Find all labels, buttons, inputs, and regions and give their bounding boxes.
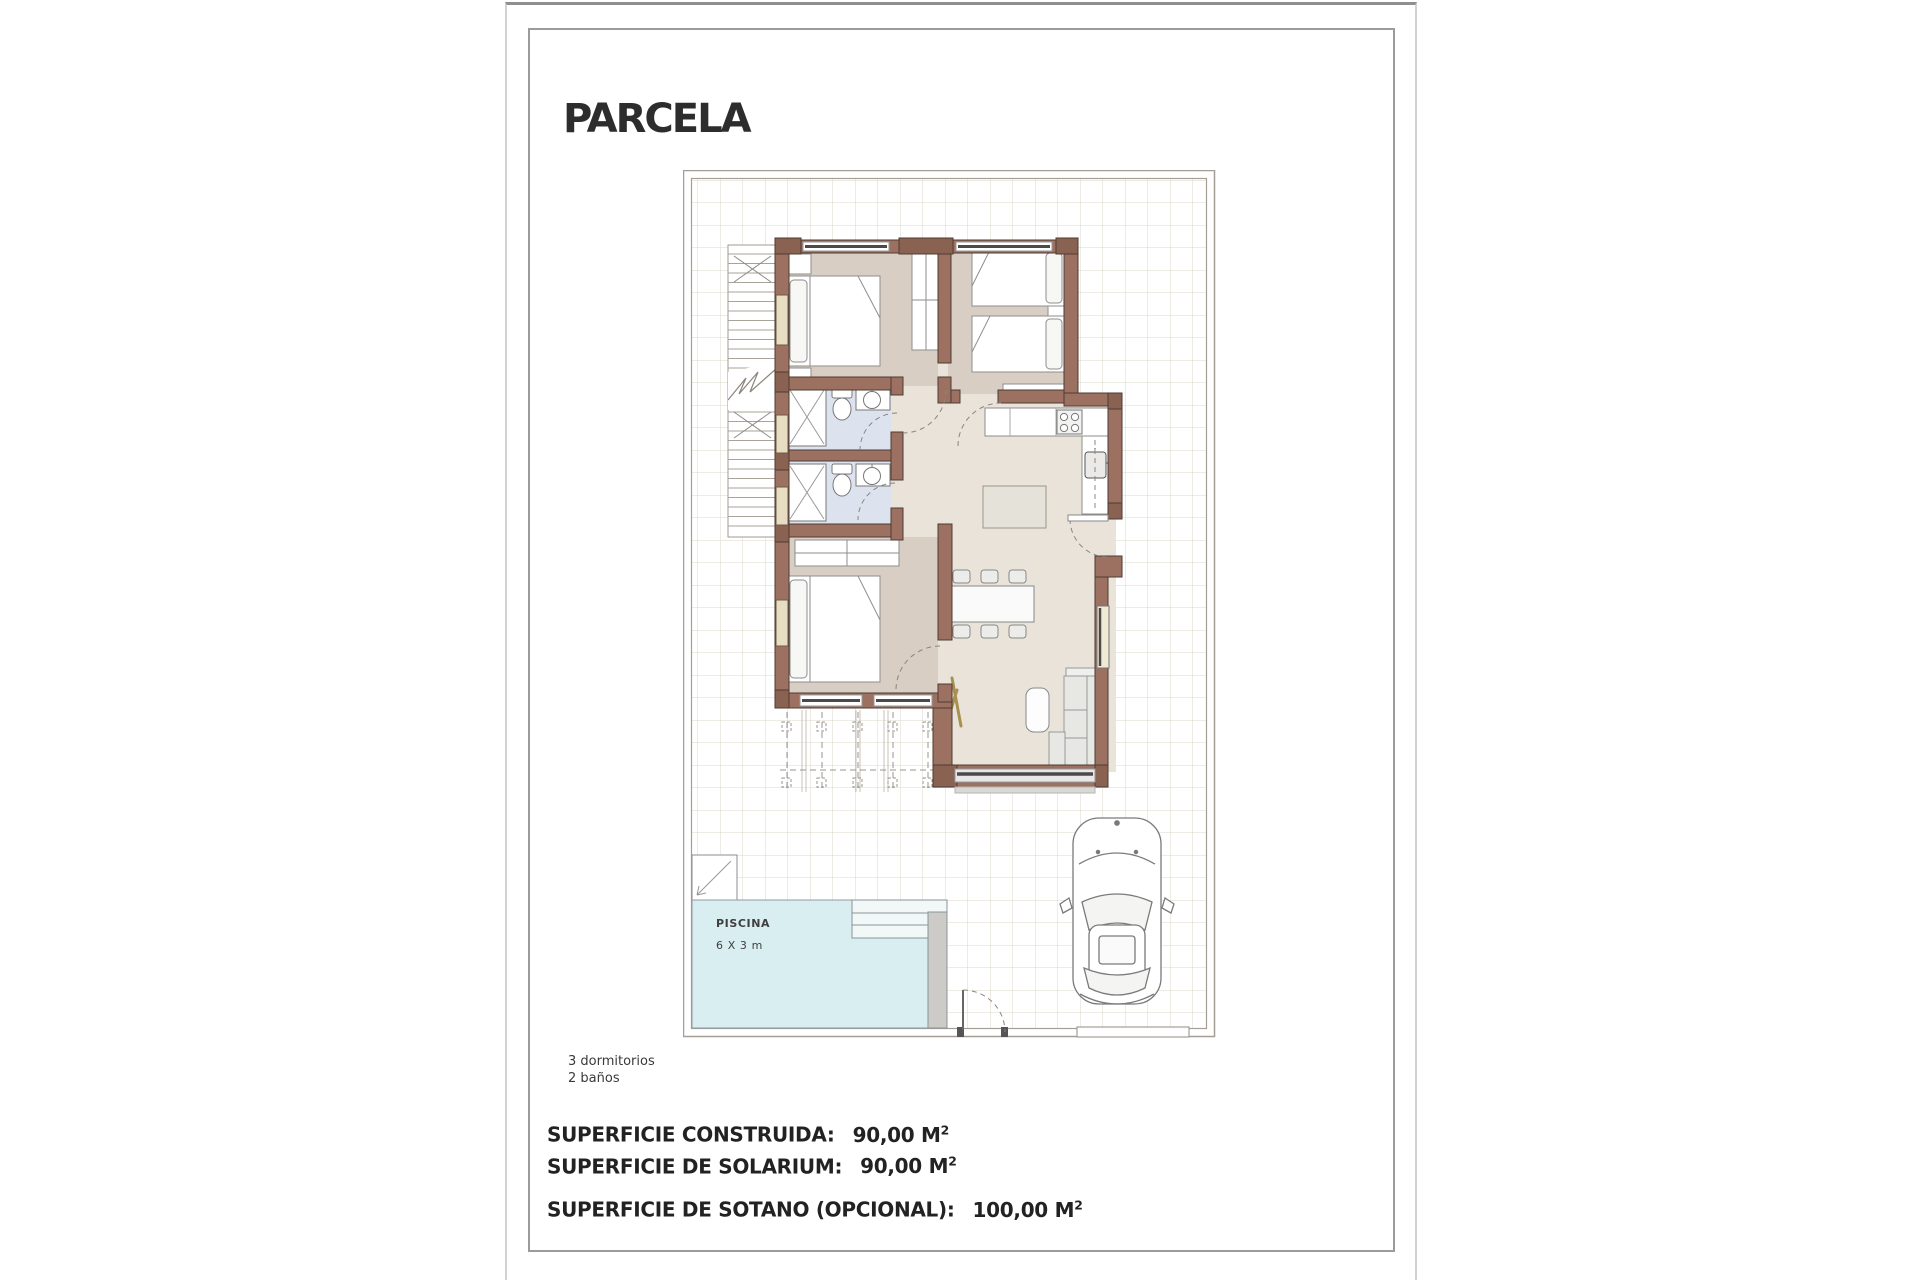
summary-unit: M2 (1055, 1198, 1083, 1222)
summary-row-sotano: SUPERFICIE DE SOTANO (OPCIONAL):100,00 M… (547, 1197, 1083, 1222)
summary-value: 90,00 (853, 1123, 915, 1147)
summary-label: SUPERFICIE CONSTRUIDA: (547, 1123, 835, 1147)
fridge (1085, 452, 1106, 478)
summary-row-solarium: SUPERFICIE DE SOLARIUM:90,00 M2 (547, 1154, 1083, 1179)
window-sill (776, 487, 788, 525)
car (1060, 818, 1174, 1004)
window-sill (776, 415, 788, 453)
summary-unit: M2 (929, 1154, 957, 1178)
kitchen-island (983, 486, 1046, 528)
window-sill (776, 295, 788, 345)
dining-set (950, 570, 1034, 638)
note-bathrooms: 2 baños (568, 1070, 655, 1087)
summary-unit: M2 (921, 1123, 949, 1147)
stairs (728, 245, 777, 537)
entry-door-leaf (1068, 515, 1108, 521)
pool-deck-edge (928, 912, 947, 1028)
plan-notes: 3 dormitorios 2 baños (568, 1053, 655, 1087)
summary-row-construida: SUPERFICIE CONSTRUIDA:90,00 M2 (547, 1122, 1083, 1147)
window-sill (776, 600, 788, 646)
toilet (832, 464, 852, 474)
summary-value: 90,00 (860, 1154, 922, 1178)
driveway-opening (1077, 1027, 1189, 1037)
surface-summary: SUPERFICIE CONSTRUIDA:90,00 M2 SUPERFICI… (547, 1122, 1083, 1222)
note-bedrooms: 3 dormitorios (568, 1053, 655, 1070)
terrace-step (955, 787, 1095, 793)
summary-value: 100,00 (973, 1198, 1048, 1222)
coffee-table (1026, 688, 1049, 732)
summary-label: SUPERFICIE DE SOLARIUM: (547, 1154, 842, 1178)
pool-dimensions: 6 X 3 m (716, 939, 763, 952)
floor-plan-page: PARCELA (0, 0, 1920, 1280)
page-title: PARCELA (563, 96, 750, 142)
pool-label: PISCINA (716, 917, 770, 930)
dining-table (950, 586, 1034, 622)
site-plan: PISCINA 6 X 3 m (683, 170, 1216, 1038)
summary-label: SUPERFICIE DE SOTANO (OPCIONAL): (547, 1198, 955, 1222)
